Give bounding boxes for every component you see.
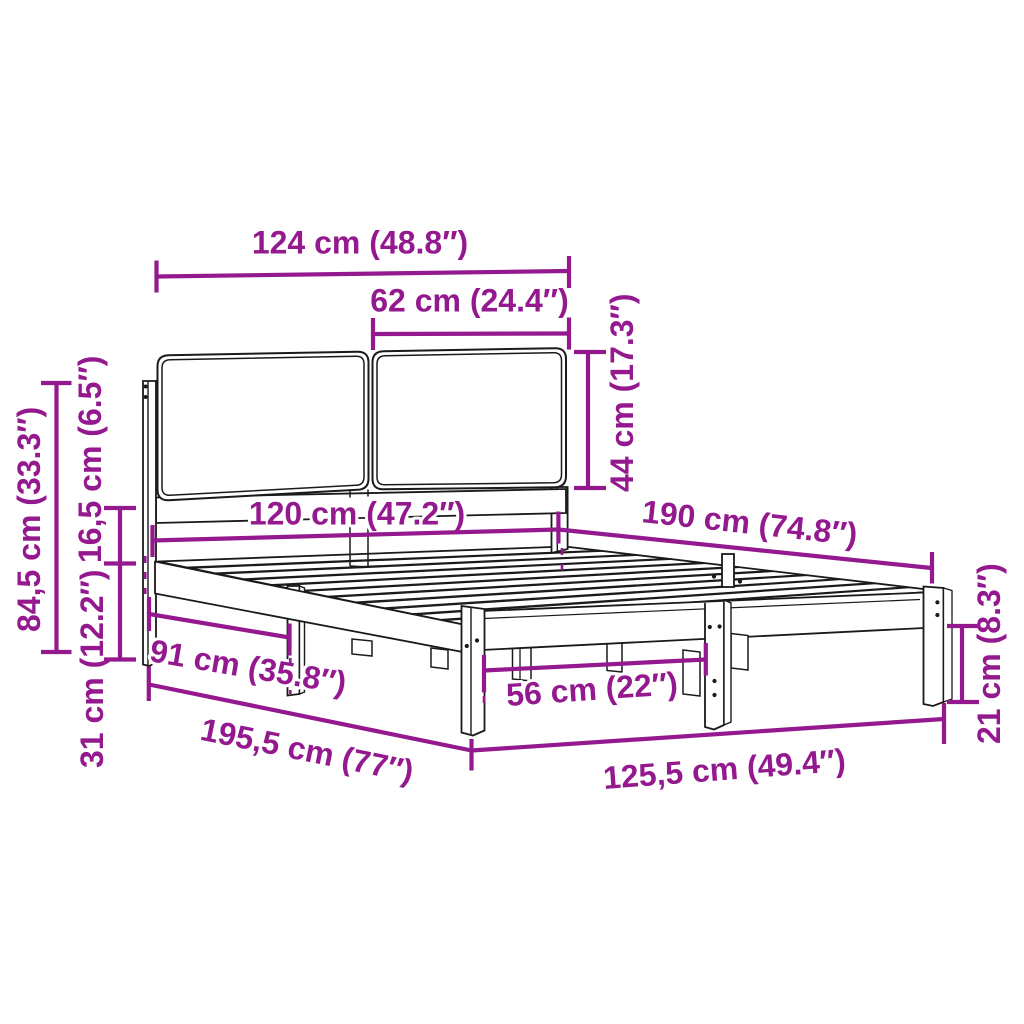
svg-text:120 cm (47.2″): 120 cm (47.2″) (249, 496, 465, 532)
svg-text:21 cm (8.3″): 21 cm (8.3″) (971, 563, 1007, 744)
svg-text:16,5 cm (6.5″): 16,5 cm (6.5″) (72, 356, 108, 563)
svg-text:124 cm (48.8″): 124 cm (48.8″) (252, 225, 468, 261)
svg-text:62 cm (24.4″): 62 cm (24.4″) (370, 283, 569, 319)
svg-text:44 cm (17.3″): 44 cm (17.3″) (604, 293, 640, 492)
svg-text:31 cm (12.2″): 31 cm (12.2″) (74, 569, 110, 768)
svg-text:125,5 cm (49.4″): 125,5 cm (49.4″) (602, 742, 847, 796)
svg-text:195,5 cm (77″): 195,5 cm (77″) (198, 711, 417, 789)
svg-text:190 cm (74.8″): 190 cm (74.8″) (640, 493, 859, 552)
svg-text:84,5 cm (33.3″): 84,5 cm (33.3″) (11, 407, 47, 632)
